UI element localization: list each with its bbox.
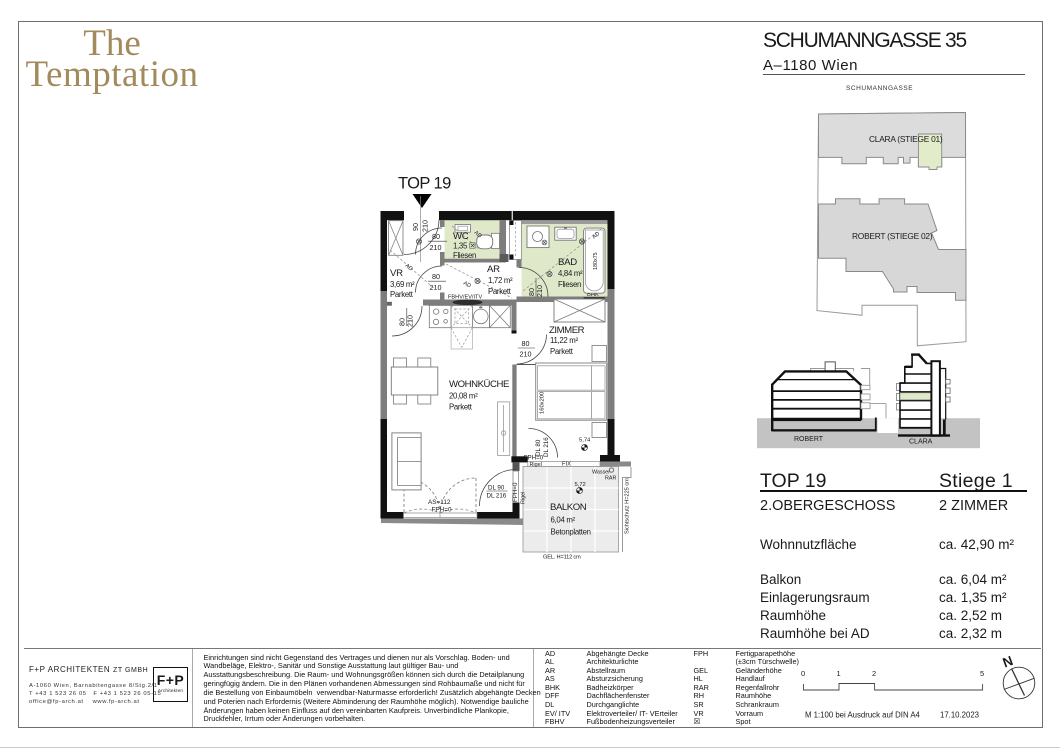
svg-text:2: 2	[872, 669, 876, 678]
svg-text:Sichtschutz H=225 cm: Sichtschutz H=225 cm	[625, 478, 631, 534]
svg-text:4,84 m²: 4,84 m²	[558, 269, 583, 278]
svg-text:Parkett: Parkett	[488, 287, 512, 296]
svg-text:DL 216: DL 216	[543, 437, 550, 457]
svg-text:AR: AR	[487, 264, 500, 275]
svg-text:20,08 m²: 20,08 m²	[449, 392, 478, 401]
svg-text:Parkett: Parkett	[390, 290, 414, 299]
svg-text:ROBERT: ROBERT	[794, 436, 824, 443]
svg-text:ZIMMER: ZIMMER	[549, 325, 585, 336]
svg-text:N: N	[1001, 653, 1015, 670]
svg-text:0: 0	[801, 669, 805, 678]
svg-text:Fliesen: Fliesen	[558, 280, 581, 289]
svg-text:17.10.2023: 17.10.2023	[940, 711, 979, 720]
svg-text:11,22 m²: 11,22 m²	[550, 336, 578, 345]
svg-text:1: 1	[837, 669, 841, 678]
svg-text:1,35 ☒: 1,35 ☒	[453, 242, 476, 251]
svg-text:6,04 m²: 6,04 m²	[551, 516, 576, 525]
svg-text:CLARA (STIEGE 01): CLARA (STIEGE 01)	[869, 134, 943, 144]
svg-text:WOHNKÜCHE: WOHNKÜCHE	[449, 379, 509, 390]
svg-text:FIX: FIX	[562, 462, 571, 468]
svg-text:AD: AD	[462, 280, 472, 289]
svg-text:5,72: 5,72	[575, 482, 586, 488]
svg-text:CLARA: CLARA	[909, 439, 933, 446]
svg-text:DL 80: DL 80	[535, 439, 542, 456]
svg-text:Betonplatten: Betonplatten	[551, 528, 591, 537]
svg-text:5,74: 5,74	[579, 438, 591, 444]
svg-text:1,72 m²: 1,72 m²	[488, 276, 513, 285]
svg-text:Rigel: Rigel	[530, 462, 542, 468]
svg-text:180x75: 180x75	[593, 252, 599, 270]
svg-text:DL 90: DL 90	[488, 485, 505, 492]
svg-text:FBHV/EV/ITV: FBHV/EV/ITV	[448, 295, 482, 301]
svg-text:ROBERT (STIEGE 02): ROBERT (STIEGE 02)	[852, 231, 933, 241]
svg-text:VR: VR	[390, 268, 403, 279]
svg-text:WC: WC	[453, 231, 469, 242]
svg-text:Parkett: Parkett	[550, 347, 574, 356]
svg-text:BALKON: BALKON	[550, 502, 587, 513]
svg-text:Parkett: Parkett	[449, 403, 473, 412]
svg-text:80: 80	[522, 339, 530, 348]
svg-text:160x200: 160x200	[540, 392, 546, 414]
svg-text:AD: AD	[404, 263, 414, 273]
svg-text:BAD: BAD	[558, 257, 577, 268]
svg-text:210: 210	[430, 283, 442, 292]
svg-text:210: 210	[520, 350, 532, 359]
svg-text:FPH=0: FPH=0	[512, 482, 519, 502]
svg-text:90: 90	[411, 223, 420, 231]
svg-text:Rigel: Rigel	[521, 492, 527, 504]
svg-text:210: 210	[430, 243, 442, 252]
svg-text:80: 80	[432, 232, 440, 241]
svg-text:DL 216: DL 216	[487, 493, 507, 500]
svg-text:5: 5	[980, 669, 984, 678]
svg-text:210: 210	[535, 285, 544, 297]
svg-text:M 1:100 bei Ausdruck auf DIN A: M 1:100 bei Ausdruck auf DIN A4	[805, 711, 921, 720]
svg-text:80: 80	[432, 272, 440, 281]
svg-text:FPH=0: FPH=0	[432, 507, 453, 514]
svg-text:Fliesen: Fliesen	[453, 251, 476, 260]
svg-text:AS=112: AS=112	[428, 499, 451, 506]
svg-text:TOP 19: TOP 19	[398, 175, 451, 193]
svg-text:RAR: RAR	[605, 476, 616, 482]
svg-text:- FPH=0: - FPH=0	[520, 455, 544, 462]
svg-text:3,69 m²: 3,69 m²	[390, 280, 415, 289]
svg-text:GEL. H=112 cm: GEL. H=112 cm	[543, 555, 581, 561]
svg-text:210: 210	[421, 220, 430, 232]
